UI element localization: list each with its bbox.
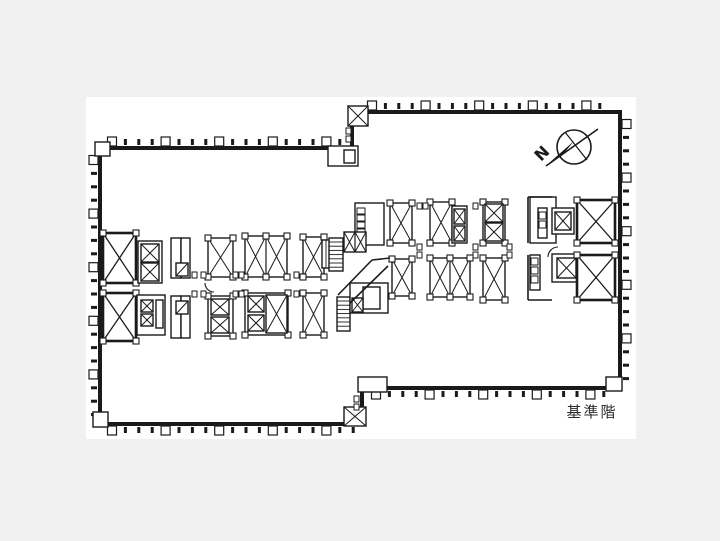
- window-mullion-tick: [298, 427, 301, 433]
- window-mullion-tick: [576, 391, 579, 397]
- window-mullion-tick: [549, 391, 552, 397]
- window-mullion-tick: [245, 427, 248, 433]
- door-stub: [201, 291, 206, 297]
- window-mullion-tick: [258, 139, 261, 145]
- column-cap: [480, 255, 486, 261]
- window-mullion-tick: [91, 172, 97, 175]
- column-cap: [447, 294, 453, 300]
- column-cap: [242, 332, 248, 338]
- facade-column: [268, 426, 277, 435]
- column-cap: [574, 240, 580, 246]
- elevator-shaft: [387, 200, 415, 246]
- facade-column: [322, 137, 331, 146]
- column-cap: [612, 240, 618, 246]
- window-mullion-tick: [442, 391, 445, 397]
- door-stub: [201, 272, 206, 278]
- elevator-shaft: [141, 244, 159, 262]
- window-mullion-tick: [505, 103, 508, 109]
- window-mullion-tick: [411, 103, 414, 109]
- window-mullion-tick: [518, 103, 521, 109]
- window-mullion-tick: [623, 243, 629, 246]
- column-cap: [427, 255, 433, 261]
- door-stub: [473, 244, 478, 250]
- door-stub: [417, 252, 422, 258]
- elevator-shaft: [389, 256, 415, 299]
- window-mullion-tick: [231, 427, 234, 433]
- room: [344, 150, 355, 163]
- door-stub: [417, 244, 422, 250]
- window-mullion-tick: [558, 103, 561, 109]
- window-mullion-tick: [312, 139, 315, 145]
- column-cap: [387, 240, 393, 246]
- window-mullion-tick: [522, 391, 525, 397]
- column-cap: [205, 333, 211, 339]
- window-mullion-tick: [455, 391, 458, 397]
- window-mullion-tick: [623, 350, 629, 353]
- door-stub: [473, 203, 478, 209]
- room: [606, 377, 622, 391]
- window-mullion-tick: [623, 190, 629, 193]
- window-mullion-tick: [401, 391, 404, 397]
- window-mullion-tick: [338, 139, 341, 145]
- window-mullion-tick: [545, 103, 548, 109]
- elevator-shaft: [574, 197, 618, 246]
- column-cap: [387, 200, 393, 206]
- column-cap: [263, 274, 269, 280]
- door-stub: [192, 272, 197, 278]
- column-cap: [133, 230, 139, 236]
- facade-column: [89, 263, 98, 272]
- window-mullion-tick: [91, 226, 97, 229]
- facade-column: [89, 156, 98, 165]
- column-cap: [427, 240, 433, 246]
- column-cap: [321, 332, 327, 338]
- elevator-shaft: [485, 223, 503, 241]
- column-cap: [612, 197, 618, 203]
- elevator-shaft: [176, 263, 188, 276]
- window-mullion-tick: [598, 103, 601, 109]
- door-stub: [239, 291, 244, 297]
- elevator-shaft: [427, 255, 473, 300]
- facade-column: [528, 101, 537, 110]
- window-mullion-tick: [231, 139, 234, 145]
- window-mullion-tick: [623, 136, 629, 139]
- window-mullion-tick: [204, 139, 207, 145]
- window-mullion-tick: [509, 391, 512, 397]
- elevator-shaft: [248, 296, 264, 312]
- window-mullion-tick: [91, 239, 97, 242]
- floor-plan-drawing: N 基準階: [0, 0, 720, 541]
- elevator-shaft: [348, 106, 368, 126]
- window-mullion-tick: [91, 333, 97, 336]
- column-cap: [574, 252, 580, 258]
- facade-column: [586, 390, 595, 399]
- elevator-shaft: [141, 263, 159, 281]
- column-cap: [242, 233, 248, 239]
- elevator-shaft: [205, 235, 236, 280]
- column-cap: [409, 240, 415, 246]
- window-mullion-tick: [491, 103, 494, 109]
- elevator-shaft: [176, 301, 188, 314]
- door-stub: [507, 244, 512, 250]
- window-mullion-tick: [178, 427, 181, 433]
- elevator-shaft: [485, 204, 503, 222]
- elevator-shaft: [100, 230, 139, 286]
- column-cap: [389, 293, 395, 299]
- elevator-shaft: [100, 290, 139, 344]
- room: [357, 208, 365, 214]
- column-cap: [389, 256, 395, 262]
- window-mullion-tick: [572, 103, 575, 109]
- door-stub: [294, 291, 299, 297]
- window-mullion-tick: [91, 252, 97, 255]
- window-mullion-tick: [91, 386, 97, 389]
- window-mullion-tick: [623, 270, 629, 273]
- room: [539, 212, 546, 219]
- facade-column: [532, 390, 541, 399]
- window-mullion-tick: [623, 257, 629, 260]
- room: [156, 300, 163, 328]
- window-mullion-tick: [623, 203, 629, 206]
- facade-column: [421, 101, 430, 110]
- column-cap: [612, 252, 618, 258]
- column-cap: [100, 290, 106, 296]
- door-stub: [423, 203, 428, 209]
- room: [93, 412, 108, 427]
- facade-column: [582, 101, 591, 110]
- window-mullion-tick: [352, 427, 355, 433]
- window-mullion-tick: [178, 139, 181, 145]
- window-mullion-tick: [623, 297, 629, 300]
- door-stub: [192, 291, 197, 297]
- facade-column: [622, 334, 631, 343]
- window-mullion-tick: [151, 139, 154, 145]
- window-mullion-tick: [451, 103, 454, 109]
- floor-label: 基準階: [566, 403, 617, 421]
- elevator-shaft: [344, 232, 366, 252]
- column-cap: [300, 290, 306, 296]
- door-stub: [233, 291, 238, 297]
- room: [531, 276, 538, 283]
- room: [539, 221, 546, 228]
- window-mullion-tick: [623, 377, 629, 380]
- stairwell: [329, 238, 343, 271]
- column-cap: [467, 294, 473, 300]
- column-cap: [409, 293, 415, 299]
- window-mullion-tick: [602, 391, 605, 397]
- window-mullion-tick: [191, 427, 194, 433]
- column-cap: [321, 274, 327, 280]
- facade-column: [89, 370, 98, 379]
- facade-column: [215, 426, 224, 435]
- door-stub: [354, 396, 359, 402]
- door-stub: [294, 272, 299, 278]
- facade-column: [89, 209, 98, 218]
- door-stub: [346, 128, 351, 134]
- window-mullion-tick: [388, 391, 391, 397]
- room: [357, 215, 365, 221]
- column-cap: [321, 234, 327, 240]
- column-cap: [409, 200, 415, 206]
- facade-column: [622, 173, 631, 182]
- window-mullion-tick: [338, 427, 341, 433]
- facade-column: [215, 137, 224, 146]
- facade-column: [268, 137, 277, 146]
- window-mullion-tick: [623, 310, 629, 313]
- elevator-shaft: [480, 255, 508, 303]
- window-mullion-tick: [623, 324, 629, 327]
- column-cap: [502, 297, 508, 303]
- column-cap: [480, 297, 486, 303]
- window-mullion-tick: [623, 163, 629, 166]
- window-mullion-tick: [91, 400, 97, 403]
- door-stub: [346, 136, 351, 142]
- window-mullion-tick: [124, 427, 127, 433]
- window-mullion-tick: [91, 279, 97, 282]
- door-stub: [417, 203, 422, 209]
- door-stub: [473, 252, 478, 258]
- facade-column: [622, 280, 631, 289]
- column-cap: [205, 235, 211, 241]
- elevator-shaft: [557, 258, 576, 278]
- column-cap: [100, 338, 106, 344]
- column-cap: [427, 294, 433, 300]
- elevator-shaft: [427, 199, 455, 246]
- column-cap: [574, 197, 580, 203]
- room: [531, 258, 538, 265]
- window-mullion-tick: [91, 185, 97, 188]
- column-cap: [449, 199, 455, 205]
- elevator-shaft: [454, 209, 465, 224]
- window-mullion-tick: [91, 306, 97, 309]
- column-cap: [100, 280, 106, 286]
- column-cap: [612, 297, 618, 303]
- elevator-shaft: [300, 290, 327, 338]
- elevator-shaft: [266, 295, 287, 333]
- room: [363, 287, 380, 309]
- door-stub: [507, 252, 512, 258]
- window-mullion-tick: [623, 364, 629, 367]
- room: [531, 267, 538, 274]
- elevator-shaft: [141, 314, 153, 326]
- window-mullion-tick: [298, 139, 301, 145]
- window-mullion-tick: [91, 346, 97, 349]
- elevator-shaft: [211, 299, 229, 315]
- column-cap: [100, 230, 106, 236]
- column-cap: [300, 234, 306, 240]
- facade-column: [622, 227, 631, 236]
- column-cap: [230, 333, 236, 339]
- facade-column: [622, 120, 631, 129]
- elevator-shaft: [454, 226, 465, 241]
- window-mullion-tick: [495, 391, 498, 397]
- column-cap: [284, 233, 290, 239]
- window-mullion-tick: [285, 139, 288, 145]
- window-mullion-tick: [204, 427, 207, 433]
- window-mullion-tick: [285, 427, 288, 433]
- facade-column: [425, 390, 434, 399]
- facade-column: [161, 137, 170, 146]
- room: [358, 377, 387, 392]
- facade-column: [108, 426, 117, 435]
- window-mullion-tick: [397, 103, 400, 109]
- window-mullion-tick: [623, 149, 629, 152]
- facade-column: [161, 426, 170, 435]
- window-mullion-tick: [562, 391, 565, 397]
- window-mullion-tick: [91, 199, 97, 202]
- column-cap: [300, 332, 306, 338]
- facade-column: [475, 101, 484, 110]
- facade-column: [479, 390, 488, 399]
- window-mullion-tick: [438, 103, 441, 109]
- column-cap: [321, 290, 327, 296]
- room: [95, 142, 110, 156]
- column-cap: [409, 256, 415, 262]
- facade-column: [89, 316, 98, 325]
- column-cap: [263, 233, 269, 239]
- window-mullion-tick: [464, 103, 467, 109]
- window-mullion-tick: [91, 360, 97, 363]
- facade-column: [322, 426, 331, 435]
- elevator-shaft: [242, 233, 290, 280]
- window-mullion-tick: [151, 427, 154, 433]
- elevator-shaft: [141, 300, 153, 312]
- window-mullion-tick: [468, 391, 471, 397]
- window-mullion-tick: [312, 427, 315, 433]
- window-mullion-tick: [258, 427, 261, 433]
- elevator-shaft: [211, 317, 229, 333]
- stairwell: [337, 297, 350, 331]
- elevator-shaft: [248, 315, 264, 331]
- elevator-shaft: [574, 252, 618, 303]
- door-stub: [354, 404, 359, 410]
- window-mullion-tick: [415, 391, 418, 397]
- room: [357, 222, 365, 228]
- screenshot-root: N 基準階: [0, 0, 720, 541]
- column-cap: [447, 255, 453, 261]
- window-mullion-tick: [91, 293, 97, 296]
- window-mullion-tick: [191, 139, 194, 145]
- door-stub: [233, 272, 238, 278]
- column-cap: [230, 235, 236, 241]
- column-cap: [300, 274, 306, 280]
- elevator-shaft: [555, 212, 571, 230]
- column-cap: [467, 255, 473, 261]
- window-mullion-tick: [124, 139, 127, 145]
- facade-column: [368, 101, 377, 110]
- window-mullion-tick: [137, 427, 140, 433]
- door-stub: [239, 272, 244, 278]
- window-mullion-tick: [623, 216, 629, 219]
- plan-geometry: [89, 101, 631, 435]
- column-cap: [284, 274, 290, 280]
- window-mullion-tick: [137, 139, 140, 145]
- window-mullion-tick: [245, 139, 248, 145]
- column-cap: [574, 297, 580, 303]
- window-mullion-tick: [384, 103, 387, 109]
- column-cap: [133, 338, 139, 344]
